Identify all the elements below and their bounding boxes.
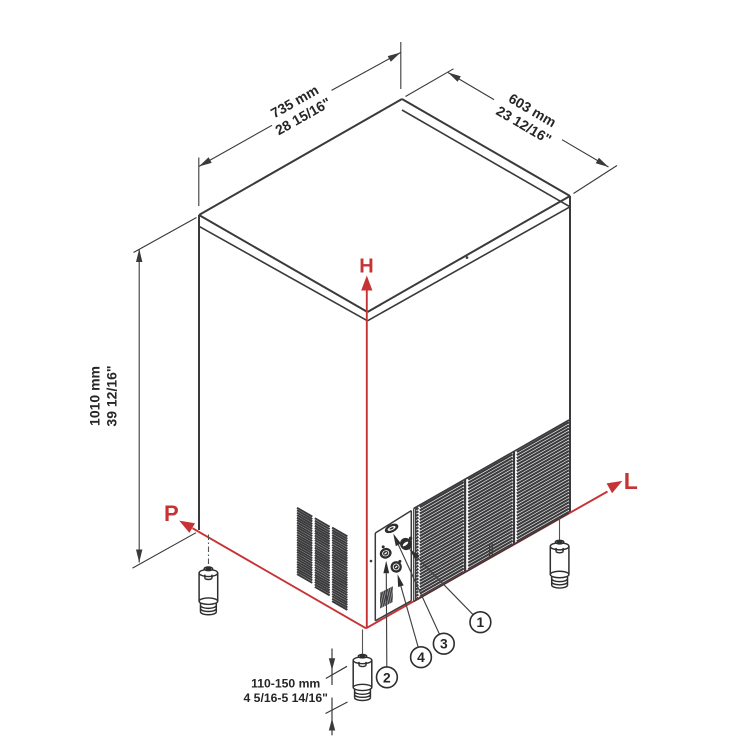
svg-text:P: P [164,501,179,526]
svg-text:110-150 mm: 110-150 mm [251,677,320,691]
svg-text:4 5/16-5 14/16": 4 5/16-5 14/16" [244,691,328,705]
svg-text:2: 2 [383,670,391,685]
svg-text:1010 mm: 1010 mm [87,366,103,426]
svg-text:H: H [359,256,373,278]
svg-text:39 12/16": 39 12/16" [104,365,120,426]
svg-text:L: L [624,468,638,494]
svg-text:1: 1 [477,615,485,630]
svg-text:4: 4 [417,650,425,665]
svg-text:3: 3 [440,637,448,652]
